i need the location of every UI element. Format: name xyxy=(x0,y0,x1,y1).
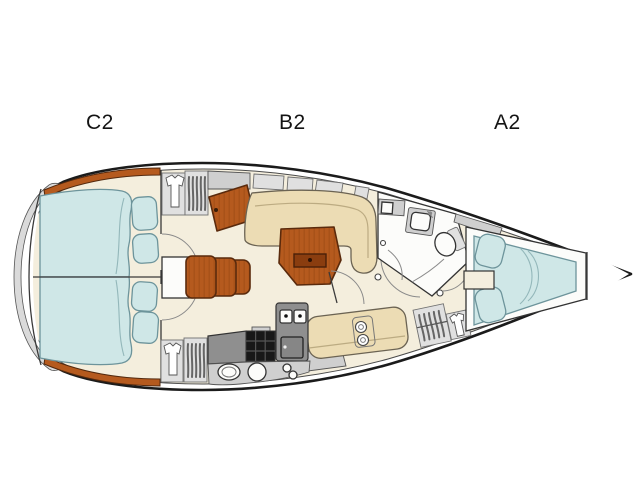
starboard-aft-pillow-1 xyxy=(131,281,158,312)
galley-counter xyxy=(208,331,248,364)
window-1 xyxy=(253,174,284,190)
oven-handle xyxy=(283,345,286,348)
door-knob-2 xyxy=(375,274,381,280)
door-knob-1 xyxy=(381,241,386,246)
forward-cabin xyxy=(454,214,629,331)
port-lockers xyxy=(162,171,208,215)
vberth-entry-step xyxy=(464,271,494,289)
cup-recess-2 xyxy=(289,371,297,379)
yacht-layout-diagram: C2 B2 A2 xyxy=(0,0,640,480)
floor-plan-svg xyxy=(0,0,640,480)
cupholder-2 xyxy=(358,335,369,346)
port-aft-pillow-1 xyxy=(131,196,158,231)
anchor-locker xyxy=(587,252,629,300)
starboard-aft-pillow-2 xyxy=(132,311,159,344)
companionway xyxy=(162,256,250,298)
port-aft-pillow-2 xyxy=(132,233,159,264)
galley-sink-round xyxy=(248,363,266,381)
cupholder-1 xyxy=(356,322,367,333)
cup-recess-1 xyxy=(283,364,291,372)
chart-table-knob xyxy=(214,208,218,212)
galley-sink-oval xyxy=(218,364,240,380)
table-fiddle-dot xyxy=(308,258,312,262)
starboard-lockers xyxy=(161,338,207,382)
drain-2 xyxy=(298,314,302,318)
companionway-step-1 xyxy=(186,256,216,298)
head-cabinet-door xyxy=(381,202,393,214)
stove-burner-grate xyxy=(246,331,275,361)
drain-1 xyxy=(284,314,288,318)
head-sink xyxy=(405,207,435,236)
